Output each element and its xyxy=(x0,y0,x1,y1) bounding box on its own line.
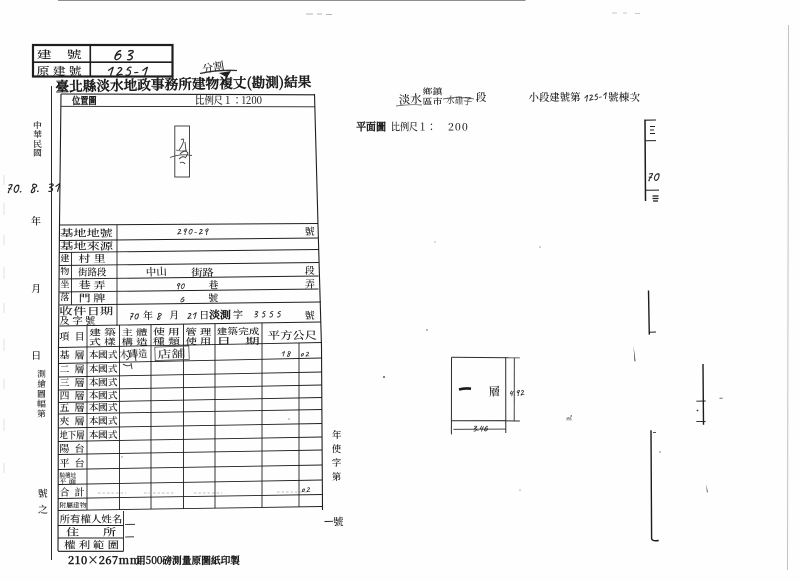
svg-text:基地地號: 基地地號 xyxy=(60,226,113,240)
svg-text:第: 第 xyxy=(332,469,342,483)
svg-text:層: 層 xyxy=(488,383,501,400)
svg-text:木磚造: 木磚造 xyxy=(119,345,148,361)
svg-text:巷 弄: 巷 弄 xyxy=(79,278,106,292)
svg-text:年: 年 xyxy=(332,427,342,441)
svg-text:基 層: 基 層 xyxy=(60,348,85,362)
svg-text:8.: 8. xyxy=(29,179,40,198)
svg-text:90: 90 xyxy=(175,280,186,293)
svg-text:建 號: 建 號 xyxy=(37,47,82,63)
svg-text:陽 台: 陽 台 xyxy=(60,441,85,455)
svg-text:權 利 範 圍: 權 利 範 圍 xyxy=(64,537,119,552)
svg-text:位置圖: 位置圖 xyxy=(72,93,97,107)
svg-text:70: 70 xyxy=(128,310,139,324)
svg-text:街路段: 街路段 xyxy=(78,265,107,279)
svg-text:號: 號 xyxy=(38,485,48,500)
svg-text:使 用: 使 用 xyxy=(186,334,212,347)
svg-text:弄: 弄 xyxy=(305,276,315,291)
svg-text:地下層: 地下層 xyxy=(60,427,85,441)
svg-text:日: 日 xyxy=(199,306,209,321)
svg-text:月: 月 xyxy=(169,307,179,322)
svg-text:70.: 70. xyxy=(5,179,22,198)
svg-text:中山: 中山 xyxy=(145,264,167,280)
svg-text:本國式: 本國式 xyxy=(89,361,118,375)
svg-text:坐: 坐 xyxy=(60,277,69,291)
svg-text:小段建號第: 小段建號第 xyxy=(529,90,581,105)
svg-text:平 台: 平 台 xyxy=(60,456,85,470)
svg-text:號: 號 xyxy=(305,223,315,238)
svg-text:字: 字 xyxy=(332,455,342,469)
svg-text:落: 落 xyxy=(60,290,69,304)
svg-text:號: 號 xyxy=(333,515,344,530)
svg-text:五 層: 五 層 xyxy=(60,400,85,414)
svg-text:門 牌: 門 牌 xyxy=(79,291,106,305)
svg-text:區市: 區市 xyxy=(423,96,443,108)
svg-text:淡測: 淡測 xyxy=(209,307,232,322)
svg-text:國: 國 xyxy=(33,146,42,159)
svg-text:物: 物 xyxy=(60,264,70,278)
svg-text:日 期: 日 期 xyxy=(217,334,260,347)
svg-text:本國式: 本國式 xyxy=(89,413,118,427)
svg-text:合 計: 合 計 xyxy=(60,485,85,499)
svg-text:200: 200 xyxy=(448,120,469,135)
svg-text:210×267mm: 210×267mm xyxy=(68,552,141,568)
svg-text:本國式: 本國式 xyxy=(89,427,118,441)
svg-text:字: 字 xyxy=(233,306,243,321)
svg-text:水碓子: 水碓子 xyxy=(446,92,473,108)
svg-text:年: 年 xyxy=(31,213,41,228)
svg-text:日: 日 xyxy=(31,347,41,362)
svg-text:三 層: 三 層 xyxy=(60,375,85,389)
svg-text:比例尺１：1200: 比例尺１：1200 xyxy=(195,93,262,108)
svg-text:本國式: 本國式 xyxy=(89,375,118,389)
svg-text:平面圖: 平面圖 xyxy=(356,120,386,135)
svg-text:3555: 3555 xyxy=(253,308,284,322)
svg-text:21: 21 xyxy=(186,309,197,323)
svg-text:夾 層: 夾 層 xyxy=(58,414,84,428)
svg-text:平方公尺: 平方公尺 xyxy=(268,328,318,343)
svg-text:31: 31 xyxy=(46,178,61,197)
svg-text:o2: o2 xyxy=(300,347,310,359)
svg-text:70: 70 xyxy=(646,168,660,186)
svg-text:比例尺１：: 比例尺１： xyxy=(391,120,436,135)
svg-text:建: 建 xyxy=(60,251,70,265)
svg-text:本國式: 本國式 xyxy=(89,400,118,414)
svg-text:使: 使 xyxy=(331,441,341,455)
svg-text:二 層: 二 層 xyxy=(60,362,85,376)
svg-text:號棟次: 號棟次 xyxy=(608,90,640,105)
svg-text:之: 之 xyxy=(38,501,48,516)
svg-text:式 樣: 式 樣 xyxy=(89,335,116,348)
svg-text:村 里: 村 里 xyxy=(79,251,106,265)
svg-text:段: 段 xyxy=(476,90,487,105)
svg-text:號: 號 xyxy=(305,307,315,322)
svg-text:第: 第 xyxy=(37,407,46,420)
svg-text:㎡: ㎡ xyxy=(566,414,572,423)
svg-text:項 目: 項 目 xyxy=(60,328,85,343)
svg-text:號: 號 xyxy=(209,290,219,305)
svg-text:o2: o2 xyxy=(301,483,311,495)
svg-text:年: 年 xyxy=(143,307,153,322)
svg-text:3.46: 3.46 xyxy=(472,422,489,435)
svg-text:本國式: 本國式 xyxy=(89,347,118,361)
svg-text:4.92: 4.92 xyxy=(508,385,526,399)
svg-text:290-29: 290-29 xyxy=(176,226,209,239)
svg-text:18: 18 xyxy=(280,348,292,360)
svg-text:用500磅測量原圖紙印製: 用500磅測量原圖紙印製 xyxy=(135,552,240,567)
svg-text:月: 月 xyxy=(31,280,41,295)
svg-text:附屬建物: 附屬建物 xyxy=(60,499,87,509)
